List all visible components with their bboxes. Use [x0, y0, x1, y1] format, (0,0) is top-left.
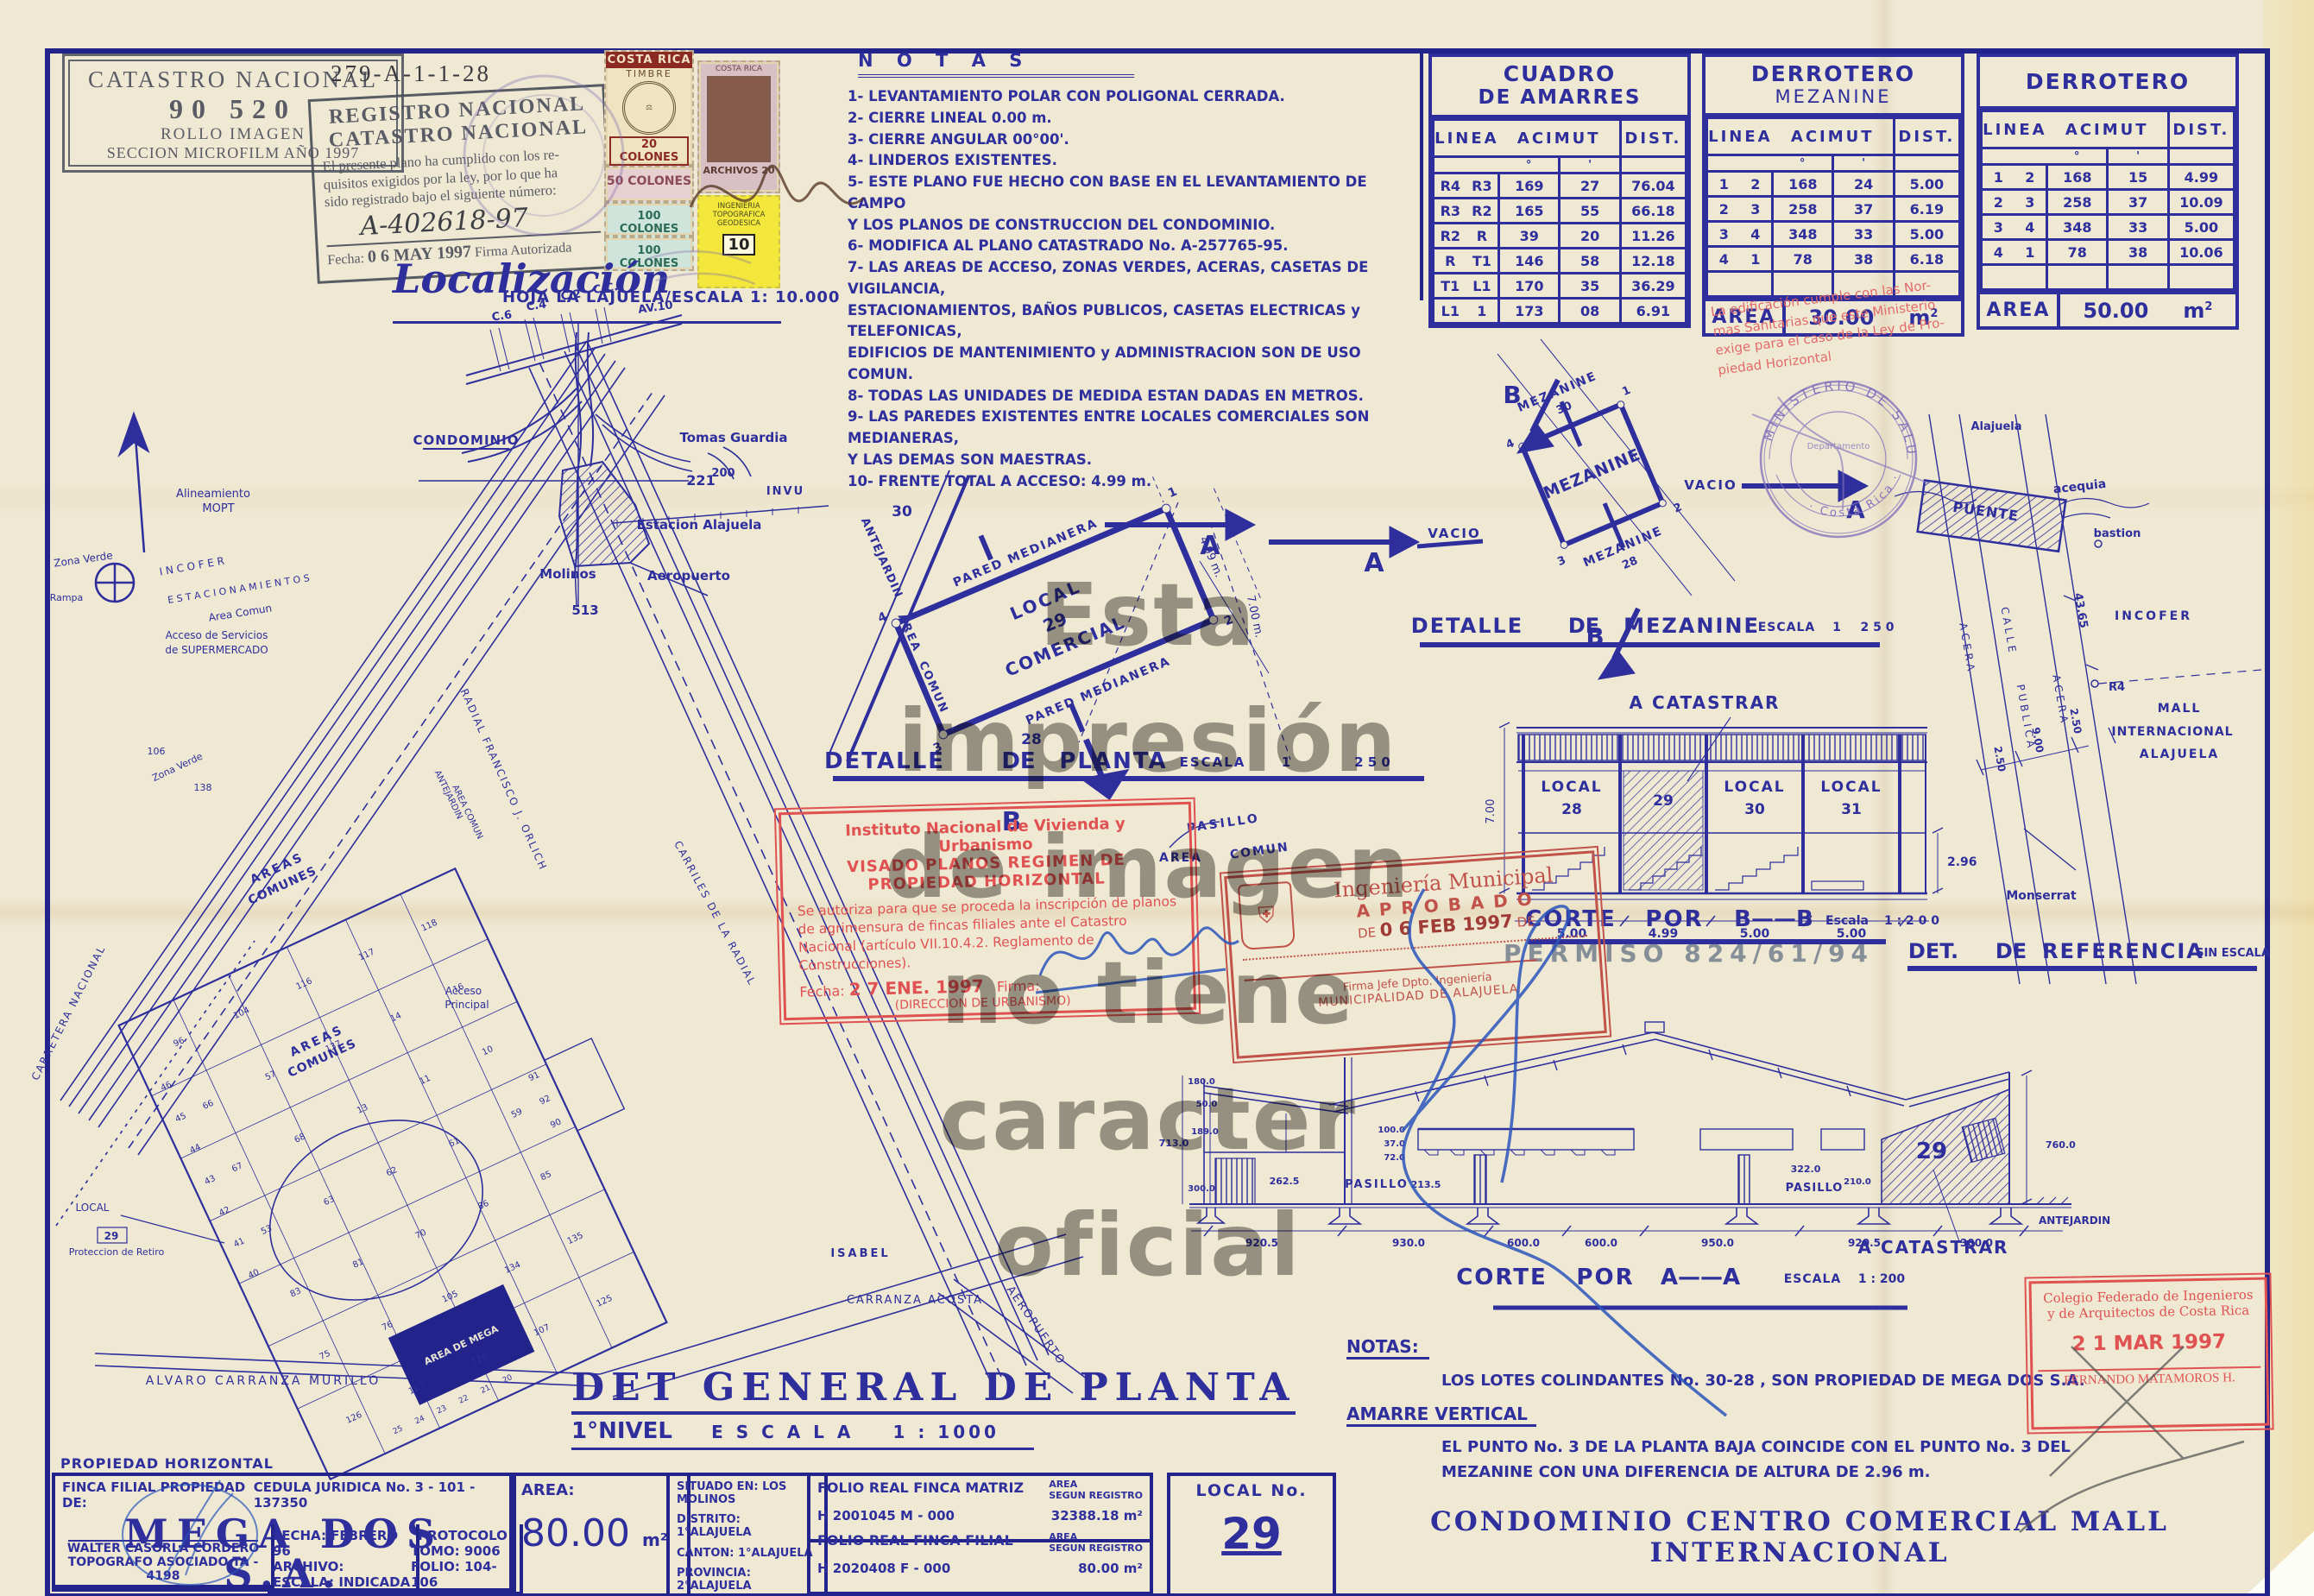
det-general-title: DET GENERAL DE PLANTA — [571, 1366, 1296, 1415]
svg-text:LOCAL: LOCAL — [1541, 779, 1602, 796]
area-cell: AREA: 80.00 m² — [509, 1473, 690, 1596]
svg-text:28: 28 — [1620, 554, 1640, 572]
area-unit: m — [2183, 299, 2204, 323]
archive-cell: FECHA: FEBRERO 96 ARCHIVO: ESCALA: INDIC… — [268, 1524, 419, 1595]
svg-text:61: 61 — [447, 1136, 461, 1149]
table-subtitle: DE AMARRES — [1432, 86, 1687, 109]
svg-text:92: 92 — [538, 1094, 552, 1107]
svg-text:A CATASTRAR: A CATASTRAR — [1630, 692, 1781, 713]
svg-text:30: 30 — [1744, 801, 1765, 818]
col-dist: DIST. — [2168, 111, 2234, 148]
svg-text:1 : 200: 1 : 200 — [1858, 1272, 1906, 1286]
svg-text:C A L L E: C A L L E — [1998, 606, 2018, 653]
escala-value: 1 : 1000 — [892, 1422, 999, 1442]
svg-text:2: 2 — [1672, 501, 1684, 515]
svg-text:57: 57 — [264, 1069, 278, 1082]
svg-text:29: 29 — [1916, 1139, 1947, 1164]
col-linea: LINEA — [1982, 111, 2047, 148]
fecha: FECHA: FEBRERO 96 — [273, 1528, 411, 1559]
svg-text:VACIO: VACIO — [1428, 526, 1481, 541]
min-unit: ' — [1833, 155, 1894, 172]
svg-text:138: 138 — [194, 782, 212, 793]
svg-text:1: 1 — [1620, 384, 1632, 399]
segun-registro: AREA SEGUN REGISTRO — [1049, 1479, 1143, 1501]
svg-text:62: 62 — [385, 1165, 399, 1178]
distrito: DISTRITO: 1°ALAJUELA — [677, 1513, 817, 1539]
table-title: CUADRO — [1432, 61, 1687, 86]
svg-text:107: 107 — [533, 1322, 552, 1338]
note-item: 5- ESTE PLANO FUE HECHO CON BASE EN EL L… — [848, 172, 1417, 236]
svg-text:INCOFER: INCOFER — [2115, 609, 2192, 623]
svg-text:E S T A C I O N A M I E N T O: E S T A C I O N A M I E N T O S — [167, 572, 310, 606]
svg-text:acequia: acequia — [2052, 477, 2107, 496]
svg-text:760.0: 760.0 — [2046, 1139, 2076, 1151]
svg-text:23: 23 — [436, 1404, 449, 1416]
note-item: 4- LINDEROS EXISTENTES. — [848, 150, 1417, 172]
svg-text:A C E R A: A C E R A — [2050, 674, 2071, 724]
svg-text:INTERNACIONAL: INTERNACIONAL — [2111, 725, 2233, 739]
svg-text:CARRILES DE LA RADIAL: CARRILES DE LA RADIAL — [672, 839, 759, 987]
svg-text:53: 53 — [260, 1224, 274, 1237]
svg-text:86: 86 — [476, 1199, 490, 1212]
svg-text:Proteccion de Retiro: Proteccion de Retiro — [69, 1246, 165, 1258]
svg-text:125: 125 — [595, 1294, 614, 1309]
cedula: CEDULA JURIDICA No. 3 - 101 - 137350 — [254, 1479, 506, 1511]
north-arrow-icon — [96, 414, 148, 602]
svg-text:41: 41 — [232, 1236, 246, 1249]
situado: SITUADO EN: LOS MOLINOS — [677, 1480, 817, 1506]
svg-text:Alineamiento: Alineamiento — [176, 488, 250, 501]
svg-text:13: 13 — [356, 1103, 369, 1116]
mezanine-rot-labels: MEZANINE30MEZANINEMEZANINE284123 — [1492, 358, 1697, 596]
svg-text:LOCAL: LOCAL — [1724, 779, 1785, 796]
svg-text:B: B — [1503, 381, 1521, 409]
svg-text:43.65: 43.65 — [2071, 592, 2090, 629]
note-item: 3- CIERRE ANGULAR 00°00'. — [848, 129, 1417, 151]
fecha-label: Fecha: — [327, 251, 364, 268]
matriz-area: 32388.18 — [1051, 1508, 1119, 1523]
svg-text:75: 75 — [318, 1349, 331, 1362]
svg-text:Acceso de Servicios: Acceso de Servicios — [166, 629, 268, 641]
location-cell: SITUADO EN: LOS MOLINOS DISTRITO: 1°ALAJ… — [666, 1473, 828, 1596]
svg-text:45: 45 — [173, 1111, 187, 1124]
tomo: TOMO: 9006 — [411, 1543, 514, 1559]
svg-text:43: 43 — [203, 1174, 217, 1187]
svg-text:105: 105 — [441, 1290, 460, 1305]
svg-text:85: 85 — [539, 1170, 553, 1183]
svg-text:ANTEJARDIN: ANTEJARDIN — [2039, 1214, 2110, 1227]
filial-area: 80.00 — [1078, 1561, 1119, 1576]
svg-text:Monserrat: Monserrat — [2006, 889, 2077, 903]
matriz-folio: H 2001045 M - 000 — [817, 1508, 955, 1523]
svg-text:134: 134 — [503, 1260, 522, 1276]
svg-text:PASILLO: PASILLO — [1786, 1182, 1844, 1195]
svg-text:81: 81 — [351, 1257, 365, 1270]
deg-unit: ° — [2047, 148, 2108, 165]
svg-text:1: 1 — [1166, 485, 1179, 502]
svg-text:ALVARO CARRANZA MURILLO: ALVARO CARRANZA MURILLO — [146, 1374, 381, 1388]
svg-text:10: 10 — [481, 1044, 495, 1057]
filial-folio: H 2020408 F - 000 — [817, 1561, 950, 1576]
protocolo: PROTOCOLO — [411, 1528, 514, 1543]
svg-text:70: 70 — [414, 1228, 428, 1241]
col-dist: DIST. — [1620, 120, 1686, 157]
escala-label: E S C A L A — [711, 1422, 854, 1442]
svg-text:31: 31 — [1841, 801, 1862, 818]
watermark-line: Esta impresión — [803, 552, 1493, 804]
svg-text:9.00: 9.00 — [2029, 727, 2046, 754]
svg-text:Area Comun: Area Comun — [208, 602, 273, 623]
svg-text:30: 30 — [1554, 400, 1574, 418]
svg-text:DE: DE — [1568, 614, 1599, 638]
svg-text:R4: R4 — [2109, 681, 2125, 694]
svg-text:DET.: DET. — [1908, 939, 1958, 963]
svg-text:I N C O F E R: I N C O F E R — [159, 555, 225, 578]
svg-text:96: 96 — [172, 1036, 186, 1049]
derrotero-table: DERROTERO LINEAACIMUTDIST. °' 12168154.9… — [1977, 54, 2239, 330]
watermark: Esta impresión de imagen no tiene caract… — [803, 552, 1493, 1309]
referencia-title: DET.DEREFERENCIASIN ESCALA — [1908, 939, 2270, 963]
svg-text:DE: DE — [1996, 939, 2027, 963]
unit: m² — [1124, 1561, 1143, 1576]
svg-text:ESCALA: ESCALA — [1758, 621, 1816, 634]
svg-text:SIN ESCALA: SIN ESCALA — [2196, 947, 2270, 960]
col-acimut: ACIMUT — [1773, 118, 1895, 155]
col-linea: LINEA — [1707, 118, 1773, 155]
svg-text:22: 22 — [457, 1394, 470, 1406]
svg-text:28: 28 — [1561, 801, 1582, 818]
svg-text:MEZANINE: MEZANINE — [1541, 445, 1643, 502]
area-value: 80.00 — [521, 1511, 630, 1555]
protocolo-cell: PROTOCOLO TOMO: 9006 FOLIO: 104-106 — [406, 1524, 523, 1595]
svg-text:135: 135 — [566, 1231, 585, 1246]
svg-text:90: 90 — [549, 1117, 563, 1130]
svg-text:322.0: 322.0 — [1791, 1164, 1821, 1175]
ministerio-salud-stamp: MINISTERIO DE SALUD · Costa Rica · Depar… — [1726, 363, 1951, 561]
cuadro-de-amarres-table: CUADRO DE AMARRES LINEAACIMUTDIST. °' R4… — [1428, 54, 1691, 328]
watermark-line: caracter oficial — [803, 1057, 1493, 1309]
folio-filial-cell: FOLIO REAL FINCA FILIAL AREA SEGUN REGIS… — [807, 1529, 1153, 1595]
local-label: LOCAL No. — [1170, 1481, 1333, 1500]
local-number: 29 — [1170, 1509, 1333, 1559]
svg-text:Principal: Principal — [445, 999, 489, 1011]
svg-text:76: 76 — [381, 1320, 394, 1333]
svg-text:30: 30 — [892, 503, 912, 520]
svg-text:Alajuela: Alajuela — [1970, 420, 2021, 433]
det-general-title-block: DET GENERAL DE PLANTA 1°NIVEL E S C A L … — [571, 1366, 1296, 1450]
surveyor-signature — [112, 1467, 285, 1593]
filial-label: FOLIO REAL FINCA FILIAL — [817, 1532, 1013, 1554]
svg-text:MALL: MALL — [2158, 702, 2202, 716]
table-rows: 12168154.99232583710.0934348335.00417838… — [1982, 165, 2235, 290]
svg-text:3: 3 — [1555, 554, 1567, 569]
svg-text:RADIAL FRANCISCO J. ORLI: RADIAL FRANCISCO J. ORLICH — [458, 687, 550, 873]
col-acimut: ACIMUT — [2047, 111, 2169, 148]
svg-text:Rampa: Rampa — [50, 592, 84, 603]
svg-text:Acceso: Acceso — [445, 985, 482, 997]
svg-text:· Costa Rica ·: · Costa Rica · — [1806, 471, 1903, 520]
min-unit: ' — [2108, 148, 2168, 165]
matriz-label: FOLIO REAL FINCA MATRIZ — [817, 1479, 1024, 1501]
svg-text:ALAJUELA: ALAJUELA — [2140, 748, 2220, 761]
segun-registro: AREA SEGUN REGISTRO — [1049, 1532, 1143, 1554]
note-item: 6- MODIFICA AL PLANO CATASTRADO No. A-25… — [848, 236, 1417, 257]
svg-text:116: 116 — [295, 976, 314, 992]
svg-text:REFERENCIA: REFERENCIA — [2042, 939, 2204, 963]
escala: ESCALA: INDICADA — [273, 1574, 411, 1590]
svg-text:Escala: Escala — [1825, 914, 1869, 928]
svg-text:MOPT: MOPT — [202, 502, 234, 515]
svg-text:21: 21 — [479, 1384, 492, 1396]
table-title: DERROTERO — [1980, 69, 2235, 94]
svg-text:300.0: 300.0 — [1960, 1237, 1993, 1249]
col-acimut: ACIMUT — [1499, 120, 1621, 157]
svg-text:2.50: 2.50 — [1991, 746, 2008, 773]
svg-text:24: 24 — [413, 1414, 426, 1426]
col-linea: LINEA — [1434, 120, 1499, 157]
area-value: 50.00 — [2083, 299, 2148, 323]
svg-text:67: 67 — [230, 1161, 244, 1174]
area-unit: m² — [642, 1530, 668, 1550]
svg-text:2 5 0: 2 5 0 — [1861, 621, 1895, 634]
min-unit: ' — [1560, 157, 1620, 173]
svg-text:126: 126 — [344, 1410, 363, 1426]
svg-text:104: 104 — [232, 1006, 251, 1021]
svg-text:920.5: 920.5 — [1848, 1237, 1881, 1249]
col-dist: DIST. — [1894, 118, 1959, 155]
svg-text:20: 20 — [501, 1373, 514, 1385]
deg-unit: ° — [1773, 155, 1833, 172]
svg-text:63: 63 — [322, 1195, 336, 1208]
svg-text:29: 29 — [104, 1230, 119, 1242]
svg-text:66: 66 — [201, 1099, 215, 1112]
provincia: PROVINCIA: 2°ALAJUELA — [677, 1567, 817, 1593]
svg-text:68: 68 — [293, 1132, 307, 1145]
registrar-signature — [682, 129, 872, 268]
notes-title: N O T A S — [858, 50, 1134, 78]
svg-text:LOCAL: LOCAL — [1820, 779, 1882, 796]
folio: FOLIO: 104-106 — [411, 1559, 514, 1590]
svg-text:29: 29 — [1653, 792, 1674, 810]
svg-text:CARRETERA NACIONAL: CARRETERA NACIONAL — [29, 943, 108, 1082]
table-subtitle: MEZANINE — [1706, 86, 1961, 107]
watermark-line: no tiene — [803, 930, 1493, 1057]
table-title: DERROTERO — [1706, 61, 1961, 86]
svg-text:210.0: 210.0 — [1844, 1177, 1871, 1187]
svg-text:83: 83 — [289, 1286, 303, 1299]
svg-text:14: 14 — [389, 1011, 403, 1024]
table-rows: R4R31692776.04R3R21655566.18R2R392011.26… — [1434, 173, 1687, 324]
canton: CANTON: 1°ALAJUELA — [677, 1547, 817, 1560]
svg-text:118: 118 — [420, 918, 439, 934]
svg-text:117: 117 — [357, 947, 376, 962]
svg-text:106: 106 — [148, 746, 166, 757]
note-item: 2- CIERRE LINEAL 0.00 m. — [848, 108, 1417, 129]
archivo: ARCHIVO: — [273, 1559, 411, 1574]
svg-text:1: 1 — [1832, 621, 1841, 634]
note-item: 1- LEVANTAMIENTO POLAR CON POLIGONAL CER… — [848, 86, 1417, 108]
svg-text:4: 4 — [1504, 437, 1516, 451]
scanned-plan-sheet: CATASTRO NACIONAL 90 520 ROLLO IMAGEN SE… — [0, 0, 2314, 1596]
svg-text:LOCAL: LOCAL — [76, 1202, 110, 1214]
local-number-cell: LOCAL No. 29 — [1167, 1473, 1336, 1596]
area-label: AREA: — [521, 1481, 678, 1499]
paper-right-margin — [2263, 0, 2314, 1596]
svg-text:bastion: bastion — [2094, 527, 2141, 540]
svg-text:11: 11 — [419, 1074, 432, 1087]
svg-text:Departamento: Departamento — [1807, 442, 1870, 451]
watermark-line: de imagen — [803, 804, 1493, 930]
deg-unit: ° — [1499, 157, 1560, 173]
svg-text:59: 59 — [510, 1107, 524, 1120]
unit: m² — [1124, 1508, 1143, 1523]
svg-text:A C E R A: A C E R A — [1957, 622, 1977, 672]
svg-text:ESCALA: ESCALA — [1784, 1272, 1842, 1286]
svg-text:2.50: 2.50 — [2067, 708, 2084, 735]
cfia-signature — [1968, 1312, 2261, 1536]
nivel-label: 1°NIVEL — [571, 1418, 672, 1444]
divider-line — [1420, 48, 1423, 300]
svg-text:MEZANINE: MEZANINE — [1624, 614, 1760, 638]
svg-text:de SUPERMERCADO: de SUPERMERCADO — [165, 644, 268, 656]
